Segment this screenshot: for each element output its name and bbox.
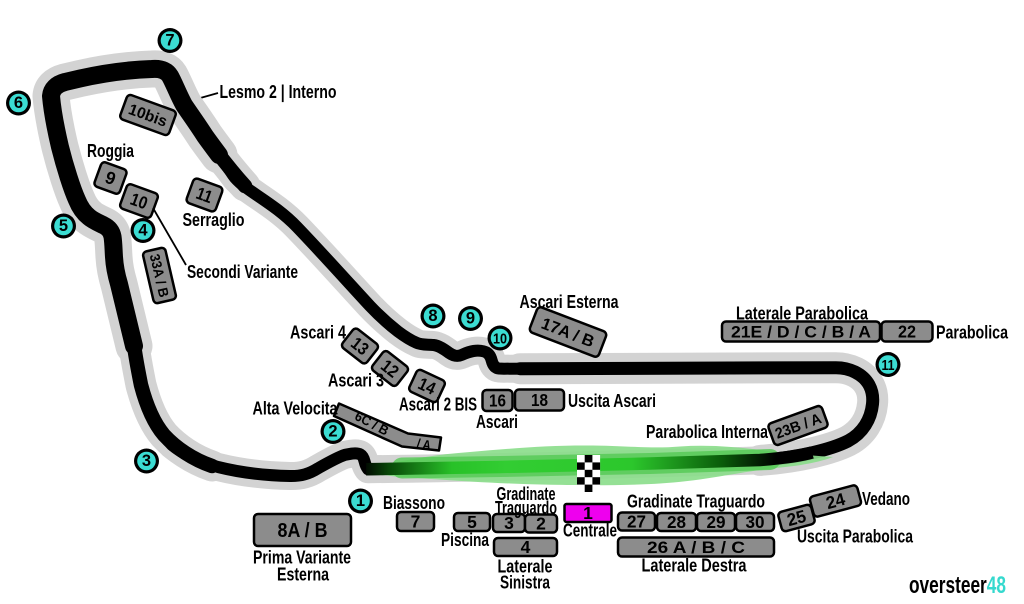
- svg-text:Ascari 4: Ascari 4: [290, 322, 347, 343]
- svg-text:1: 1: [356, 492, 365, 510]
- svg-text:3: 3: [142, 452, 151, 470]
- svg-text:Serraglio: Serraglio: [183, 209, 245, 230]
- svg-text:Piscina: Piscina: [441, 529, 490, 550]
- svg-text:8A / B: 8A / B: [278, 520, 328, 542]
- svg-text:Biassono: Biassono: [383, 492, 445, 513]
- svg-text:Gradinate Traguardo: Gradinate Traguardo: [627, 491, 765, 512]
- svg-text:Centrale: Centrale: [563, 520, 617, 541]
- svg-text:22: 22: [898, 322, 916, 342]
- svg-text:Ascari 2 BIS: Ascari 2 BIS: [399, 394, 477, 415]
- svg-text:30: 30: [746, 512, 765, 532]
- svg-text:Ascari: Ascari: [476, 411, 518, 432]
- svg-text:Alta Velocita: Alta Velocita: [253, 398, 339, 419]
- svg-text:oversteer48: oversteer48: [909, 572, 1006, 599]
- svg-text:2: 2: [328, 423, 337, 441]
- svg-text:7: 7: [411, 512, 421, 532]
- svg-text:Ascari Esterna: Ascari Esterna: [520, 291, 620, 312]
- svg-text:29: 29: [707, 512, 726, 532]
- svg-text:Roggia: Roggia: [87, 140, 135, 161]
- svg-text:7: 7: [165, 32, 174, 50]
- svg-text:Traguardo: Traguardo: [495, 497, 557, 518]
- svg-text:6: 6: [14, 94, 23, 112]
- svg-text:28: 28: [667, 512, 686, 532]
- svg-text:11: 11: [882, 357, 895, 374]
- svg-text:18: 18: [531, 390, 548, 410]
- svg-text:4: 4: [521, 537, 531, 557]
- svg-text:Ascari 3: Ascari 3: [328, 370, 384, 391]
- svg-text:10: 10: [493, 331, 507, 348]
- svg-text:4: 4: [138, 222, 148, 240]
- svg-text:5: 5: [59, 217, 68, 235]
- svg-text:9: 9: [466, 310, 475, 328]
- svg-text:Parabolica Interna: Parabolica Interna: [646, 421, 769, 442]
- svg-text:27: 27: [627, 512, 646, 532]
- svg-text:Laterale Destra: Laterale Destra: [642, 555, 748, 576]
- svg-text:21E / D / C / B / A: 21E / D / C / B / A: [731, 324, 871, 342]
- svg-text:16: 16: [489, 391, 506, 411]
- svg-text:Secondi Variante: Secondi Variante: [187, 261, 298, 282]
- svg-text:Esterna: Esterna: [277, 564, 330, 585]
- svg-text:Sinistra: Sinistra: [500, 572, 551, 593]
- svg-text:Laterale Parabolica: Laterale Parabolica: [736, 303, 869, 324]
- svg-text:Lesmo 2 | Interno: Lesmo 2 | Interno: [220, 81, 337, 102]
- svg-text:Uscita Ascari: Uscita Ascari: [568, 390, 656, 411]
- svg-text:Uscita Parabolica: Uscita Parabolica: [797, 526, 914, 547]
- svg-text:Vedano: Vedano: [862, 488, 910, 509]
- svg-text:8: 8: [428, 307, 437, 325]
- svg-text:/ A: / A: [416, 436, 433, 453]
- svg-text:Parabolica: Parabolica: [936, 322, 1009, 343]
